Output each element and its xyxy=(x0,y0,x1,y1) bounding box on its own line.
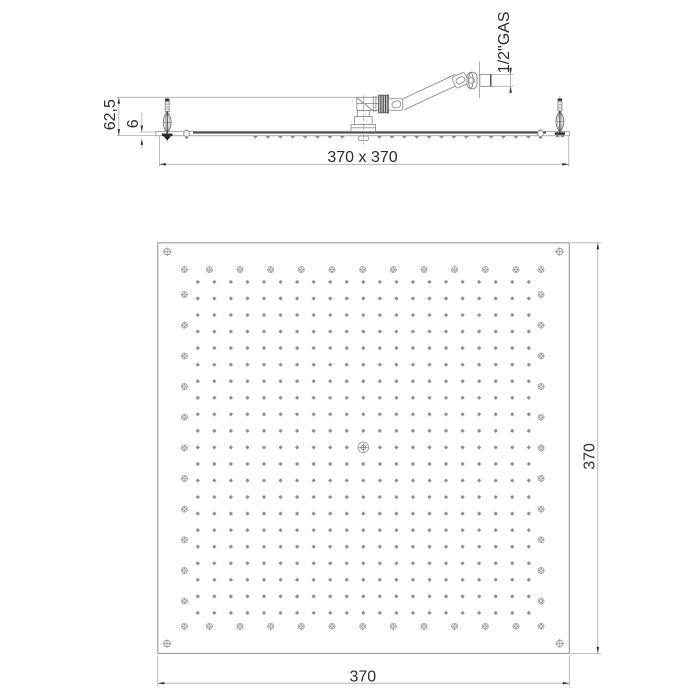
svg-text:370: 370 xyxy=(582,443,599,470)
svg-text:370 x 370: 370 x 370 xyxy=(327,149,397,166)
svg-text:1/2"GAS: 1/2"GAS xyxy=(496,11,513,73)
svg-text:6: 6 xyxy=(125,119,142,128)
svg-text:62,5: 62,5 xyxy=(102,99,119,130)
svg-text:370: 370 xyxy=(349,668,376,685)
